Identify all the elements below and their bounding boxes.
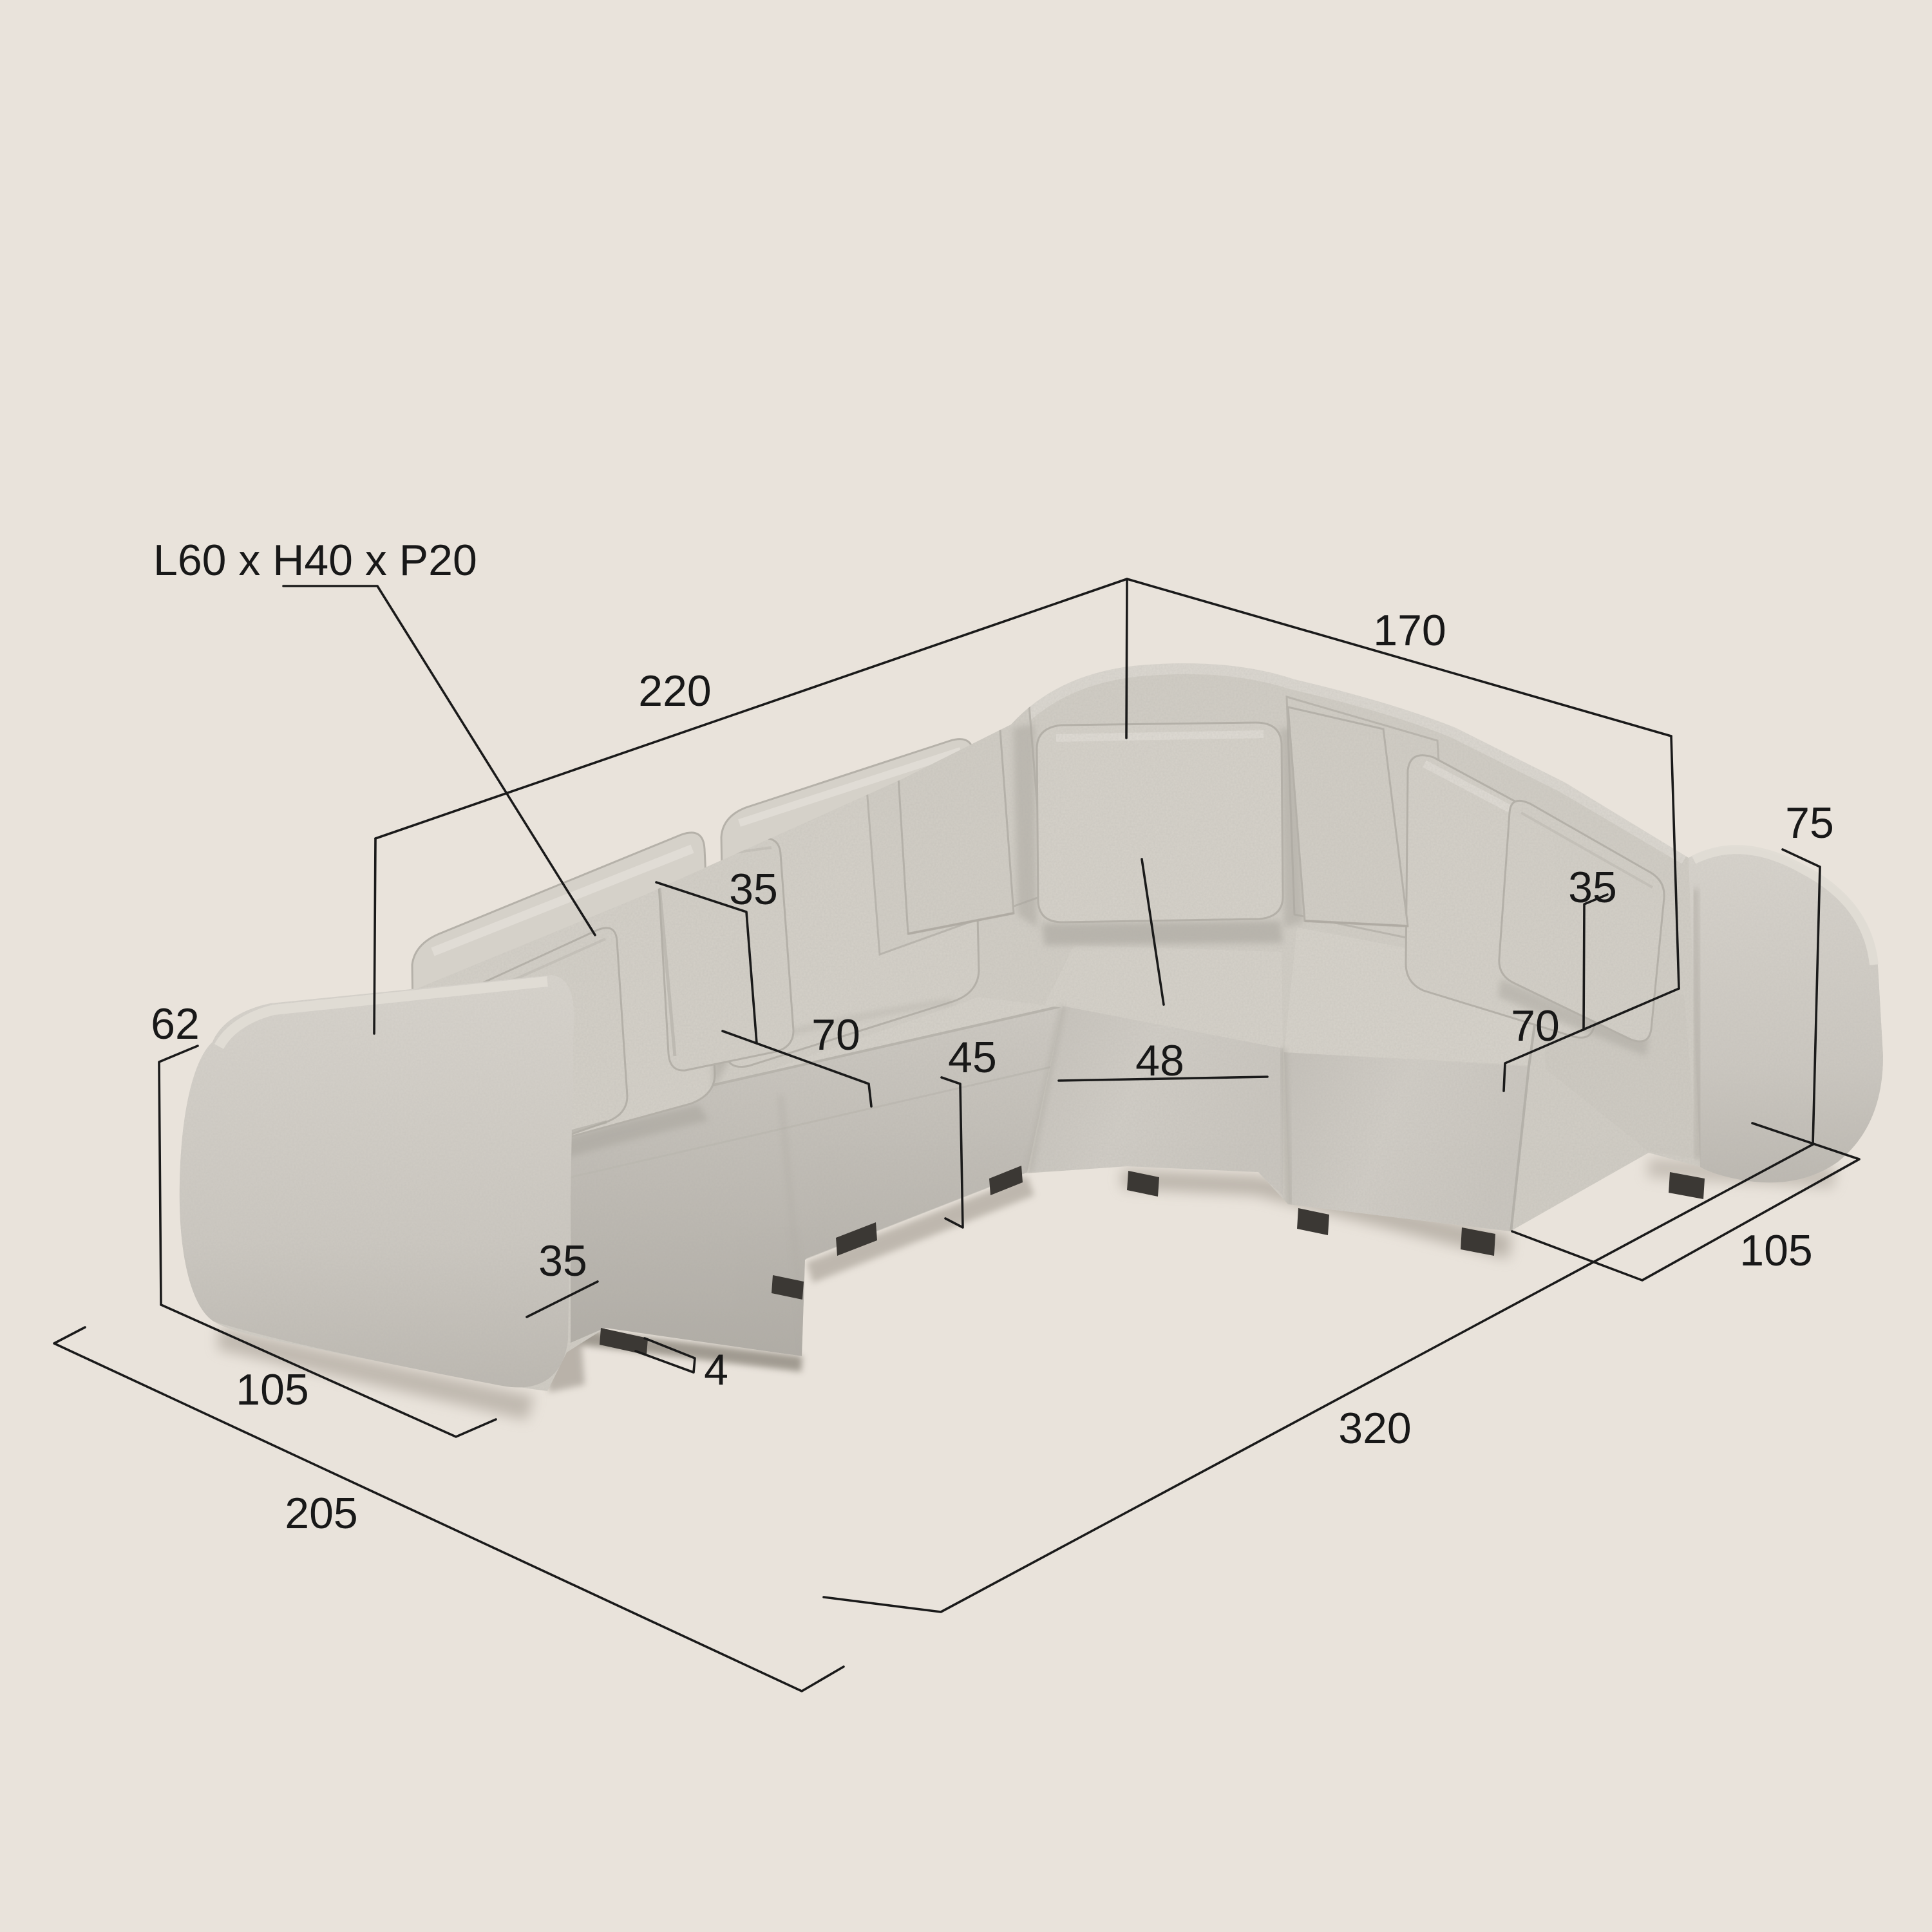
svg-text:205: 205 (285, 1489, 357, 1538)
svg-text:62: 62 (151, 999, 200, 1048)
svg-text:4: 4 (704, 1345, 728, 1394)
svg-text:35: 35 (538, 1236, 587, 1285)
svg-text:170: 170 (1373, 606, 1446, 655)
svg-text:35: 35 (729, 865, 778, 914)
svg-text:70: 70 (1511, 1001, 1560, 1050)
svg-text:70: 70 (811, 1010, 860, 1059)
svg-text:220: 220 (638, 667, 711, 715)
svg-text:320: 320 (1338, 1404, 1411, 1453)
svg-text:45: 45 (948, 1033, 997, 1082)
svg-text:48: 48 (1135, 1036, 1184, 1085)
svg-text:35: 35 (1568, 863, 1617, 912)
svg-text:105: 105 (236, 1365, 308, 1414)
svg-text:75: 75 (1785, 799, 1834, 848)
svg-text:105: 105 (1739, 1226, 1812, 1275)
svg-text:L60 x H40 x P20: L60 x H40 x P20 (153, 536, 477, 585)
